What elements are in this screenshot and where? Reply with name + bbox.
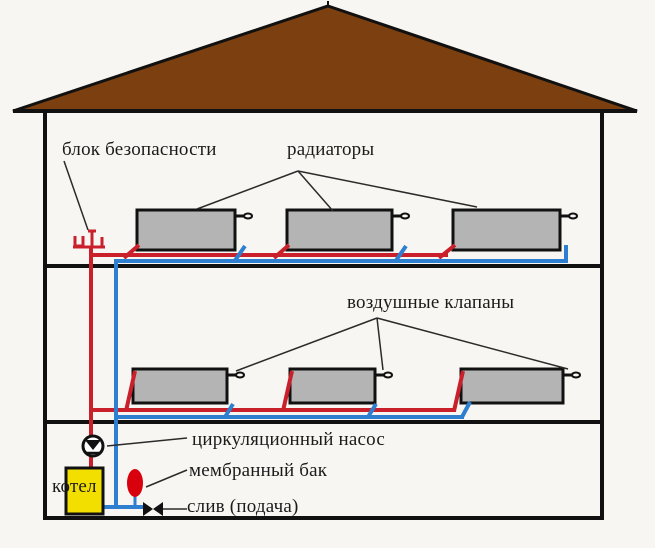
leader-air-valves — [236, 318, 377, 371]
leader-air-valves — [377, 318, 383, 370]
leader-tank — [146, 470, 187, 487]
safety-block-icon — [73, 231, 105, 247]
radiator — [137, 210, 235, 250]
label-safety-block: блок безопасности — [62, 139, 217, 161]
leader-air-valves — [377, 318, 568, 369]
leader-radiators — [197, 171, 298, 209]
leader-pump — [107, 438, 187, 446]
leader-safety-block — [64, 161, 88, 230]
label-membrane-tank: мембранный бак — [189, 460, 327, 482]
label-circulation-pump: циркуляционный насос — [192, 429, 385, 451]
air-valve-icon — [227, 373, 244, 378]
radiator — [287, 210, 392, 250]
radiator — [290, 369, 375, 403]
circulation-pump-icon — [83, 436, 103, 456]
radiator — [133, 369, 227, 403]
label-radiators: радиаторы — [287, 139, 374, 161]
membrane-tank-icon — [127, 469, 143, 497]
air-valve-icon — [375, 373, 392, 378]
label-boiler: котел — [52, 476, 97, 498]
label-air-valves: воздушные клапаны — [347, 292, 514, 314]
radiator — [453, 210, 560, 250]
air-valve-icon — [235, 214, 252, 219]
drain-valve-icon — [143, 502, 163, 516]
roof-shape — [13, 6, 637, 111]
air-valve-icon — [563, 373, 580, 378]
house-structure — [43, 112, 604, 518]
scheme-drawing — [0, 0, 655, 548]
air-valve-icon — [560, 214, 577, 219]
label-drain-supply: слив (подача) — [187, 496, 299, 518]
roof — [13, 1, 637, 111]
air-valve-icon — [392, 214, 409, 219]
heating-scheme-diagram: блок безопасности радиаторы воздушные кл… — [0, 0, 655, 548]
radiator — [461, 369, 563, 403]
